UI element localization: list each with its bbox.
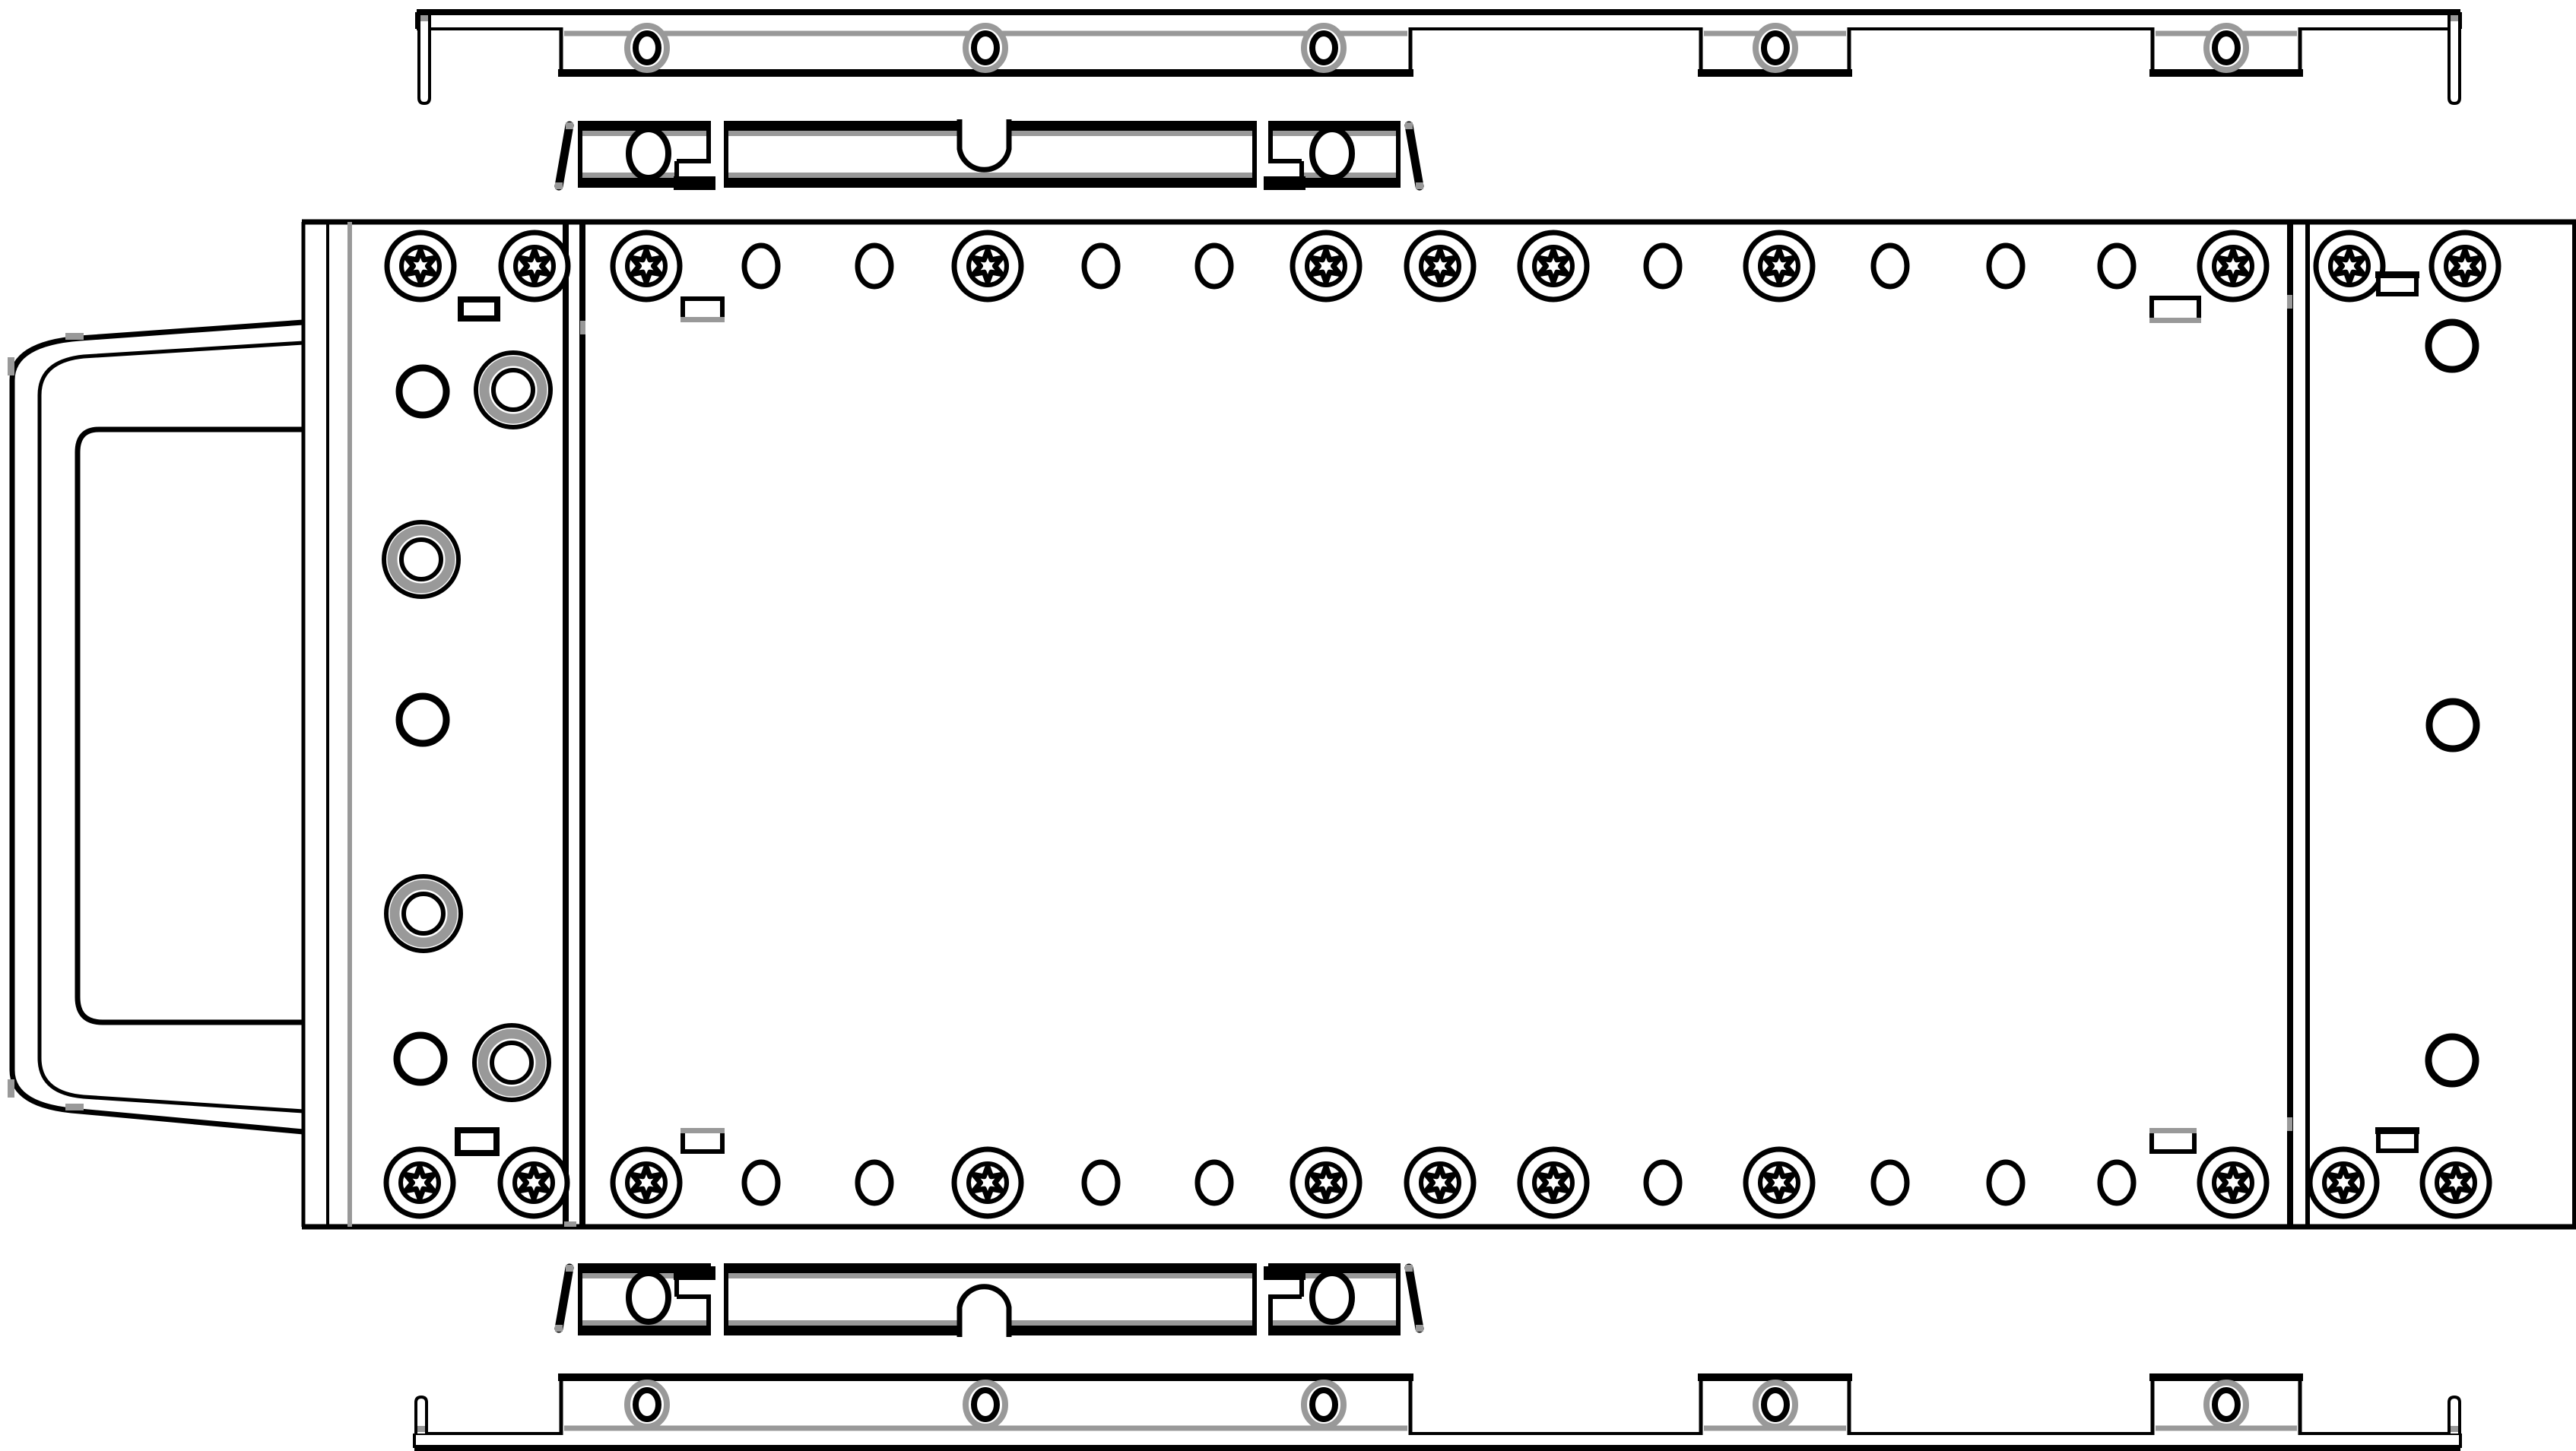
rivet-grommet bbox=[627, 26, 667, 70]
tab-slot bbox=[461, 299, 497, 318]
round-hole bbox=[2429, 702, 2476, 749]
notch-clear bbox=[679, 1278, 711, 1297]
tab-slot bbox=[2375, 271, 2419, 294]
bracket-hole bbox=[629, 129, 668, 178]
round-hole bbox=[1989, 1162, 2022, 1203]
io-connector bbox=[8, 322, 303, 1132]
torx-screw bbox=[386, 1149, 453, 1216]
torx-screw bbox=[613, 233, 680, 299]
torx-screw bbox=[1293, 233, 1359, 299]
rivet-inner-ring bbox=[974, 33, 997, 62]
grommet-hole bbox=[384, 522, 458, 597]
slot-outline bbox=[458, 1130, 496, 1153]
rivet-grommet bbox=[2206, 26, 2246, 70]
rivet-inner-ring bbox=[2215, 1390, 2238, 1419]
notch-foot bbox=[674, 1266, 715, 1280]
round-hole bbox=[399, 696, 446, 743]
body-gray-tick bbox=[564, 1221, 576, 1227]
top-mounting-rail bbox=[417, 12, 2460, 103]
round-hole bbox=[2100, 1162, 2133, 1203]
torx-screw bbox=[2432, 233, 2498, 299]
body-gray-tick bbox=[2287, 1117, 2292, 1131]
assembly-drawing-page bbox=[0, 0, 2576, 1451]
torx-screw bbox=[954, 233, 1021, 299]
spring-clip bbox=[555, 1265, 573, 1332]
torx-screw bbox=[613, 1149, 680, 1216]
rivet-grommet bbox=[1304, 1383, 1344, 1427]
round-hole bbox=[2428, 322, 2476, 369]
hook-gray-tick bbox=[417, 1426, 425, 1432]
round-hole bbox=[397, 1035, 444, 1082]
torx-screw bbox=[1293, 1149, 1359, 1216]
connector-gray-tick bbox=[8, 1079, 14, 1098]
rivet-inner-ring bbox=[1764, 1390, 1787, 1419]
grommet-hole bbox=[386, 876, 461, 951]
rivet-inner-ring bbox=[1312, 33, 1335, 62]
slot-outline bbox=[2152, 1131, 2194, 1152]
round-hole bbox=[744, 246, 778, 287]
round-hole bbox=[1084, 246, 1118, 287]
u-notch-outline bbox=[960, 119, 1009, 169]
slot-heavy-edge bbox=[2375, 1127, 2419, 1134]
spring-gray-tick bbox=[555, 182, 563, 189]
edge-line bbox=[559, 125, 569, 186]
hook-outline bbox=[419, 15, 430, 103]
bottom-clip-bracket bbox=[555, 1263, 1423, 1337]
grommet-hole bbox=[474, 1025, 549, 1100]
edge-line bbox=[559, 1268, 569, 1329]
rivet-grommet bbox=[627, 1383, 667, 1427]
torx-screw bbox=[2200, 1149, 2267, 1216]
bracket-hole bbox=[1312, 129, 1352, 178]
round-hole bbox=[1198, 246, 1231, 287]
grommet-hole bbox=[476, 353, 550, 427]
section-edge-bar bbox=[578, 1326, 711, 1335]
hook-gray-tick bbox=[420, 15, 428, 21]
spring-gray-tick bbox=[1405, 122, 1413, 129]
torx-screw bbox=[954, 1149, 1021, 1216]
tab-slot bbox=[2149, 298, 2201, 323]
step-notch bbox=[1264, 161, 1305, 190]
rivet-grommet bbox=[2206, 1383, 2246, 1427]
hook-gray-tick bbox=[2451, 15, 2458, 21]
rivet-grommet bbox=[1756, 1383, 1795, 1427]
torx-screw bbox=[2422, 1149, 2489, 1216]
bracket-hole bbox=[1312, 1273, 1352, 1322]
rivet-grommet bbox=[966, 1383, 1005, 1427]
connector-gray-tick bbox=[65, 1104, 84, 1110]
torx-screw bbox=[2316, 233, 2383, 299]
spring-gray-tick bbox=[566, 1265, 573, 1272]
connector-gray-tick bbox=[8, 357, 14, 375]
slot-gray-edge bbox=[2149, 1128, 2197, 1133]
spring-clip bbox=[555, 122, 573, 189]
notch-foot bbox=[674, 176, 715, 190]
torx-screw bbox=[500, 1149, 567, 1216]
torx-screw bbox=[1746, 233, 1813, 299]
top-clip-bracket bbox=[555, 119, 1423, 190]
tab-slot bbox=[680, 1128, 725, 1152]
round-hole bbox=[1989, 246, 2022, 287]
torx-screw bbox=[501, 233, 568, 299]
spring-gray-tick bbox=[566, 122, 573, 129]
slot-outline bbox=[461, 299, 497, 318]
slot-gray-edge bbox=[680, 1128, 725, 1133]
torx-screw bbox=[1746, 1149, 1813, 1216]
rivet-inner-ring bbox=[2215, 33, 2238, 62]
round-hole bbox=[858, 1162, 891, 1203]
body-face bbox=[303, 222, 2574, 1227]
slot-heavy-edge bbox=[2375, 271, 2419, 278]
body-gray-tick bbox=[580, 321, 585, 334]
grommet-inner-ring bbox=[493, 370, 533, 410]
torx-screw bbox=[1407, 1149, 1474, 1216]
rivet-grommet bbox=[966, 26, 1005, 70]
assembly-drawing bbox=[0, 0, 2576, 1451]
slot-outline bbox=[2152, 298, 2199, 320]
torx-screw bbox=[1407, 233, 1474, 299]
hook-gray-tick bbox=[2451, 1426, 2458, 1432]
slot-gray-edge bbox=[2149, 318, 2201, 323]
torx-screw bbox=[387, 233, 454, 299]
chassis-body bbox=[302, 222, 2576, 1227]
rail-tab bbox=[558, 26, 1413, 73]
spring-gray-tick bbox=[555, 1325, 563, 1332]
bracket-hole bbox=[629, 1273, 668, 1322]
round-hole bbox=[2100, 246, 2133, 287]
slot-outline bbox=[683, 1131, 722, 1152]
rivet-inner-ring bbox=[1312, 1390, 1335, 1419]
rail-tab bbox=[1698, 1377, 1852, 1435]
slot-outline bbox=[683, 299, 722, 319]
round-hole bbox=[1646, 1162, 1680, 1203]
rivet-grommet bbox=[1304, 26, 1344, 70]
round-hole bbox=[1646, 246, 1680, 287]
slot-gray-edge bbox=[680, 317, 725, 322]
u-notch bbox=[960, 119, 1009, 169]
rivet-grommet bbox=[1756, 26, 1795, 70]
tab-slot bbox=[2375, 1127, 2419, 1151]
notch-foot bbox=[1264, 1266, 1305, 1280]
u-notch-outline bbox=[960, 1287, 1009, 1337]
round-hole bbox=[1198, 1162, 1231, 1203]
step-notch bbox=[674, 1266, 715, 1297]
section-edge-bar bbox=[724, 178, 1257, 188]
bottom-mounting-rail bbox=[414, 1377, 2460, 1448]
rivet-inner-ring bbox=[1764, 33, 1787, 62]
body-gray-tick bbox=[2287, 295, 2292, 309]
round-hole bbox=[1084, 1162, 1118, 1203]
u-notch bbox=[960, 1287, 1009, 1337]
spring-gray-tick bbox=[1416, 1325, 1423, 1332]
torx-screw bbox=[1520, 233, 1587, 299]
step-notch bbox=[674, 161, 715, 190]
spring-gray-tick bbox=[1416, 182, 1423, 189]
rail-end-hook bbox=[419, 15, 430, 103]
torx-screw bbox=[2310, 1149, 2377, 1216]
round-hole bbox=[2428, 1037, 2476, 1084]
section-gray-line bbox=[724, 173, 1257, 178]
rail-tab bbox=[558, 1377, 1413, 1435]
section-edge-bar bbox=[724, 1263, 1257, 1273]
spring-clip bbox=[1405, 122, 1423, 189]
torx-screw bbox=[2200, 233, 2267, 299]
round-hole bbox=[1873, 246, 1907, 287]
tab-slot bbox=[680, 299, 725, 322]
connector-window bbox=[78, 429, 303, 1022]
step-notch bbox=[1264, 1266, 1305, 1297]
edge-line bbox=[1409, 125, 1420, 186]
grommet-inner-ring bbox=[401, 540, 441, 579]
grommet-inner-ring bbox=[404, 894, 443, 933]
torx-screw bbox=[1520, 1149, 1587, 1216]
spring-gray-tick bbox=[1405, 1265, 1413, 1272]
spring-clip bbox=[1405, 1265, 1423, 1332]
connector-gray-tick bbox=[65, 333, 84, 340]
round-hole bbox=[858, 246, 891, 287]
rivet-inner-ring bbox=[636, 33, 658, 62]
grommet-inner-ring bbox=[492, 1043, 531, 1082]
rivet-inner-ring bbox=[974, 1390, 997, 1419]
notch-clear bbox=[1268, 1278, 1300, 1297]
hook-outline bbox=[2449, 15, 2460, 103]
round-hole bbox=[744, 1162, 778, 1203]
tab-slot bbox=[2149, 1128, 2197, 1152]
rail-tab bbox=[1698, 26, 1852, 73]
edge-line bbox=[1409, 1268, 1420, 1329]
round-hole bbox=[399, 368, 446, 415]
rail-end-hook bbox=[2449, 15, 2460, 103]
round-hole bbox=[1873, 1162, 1907, 1203]
section-edge-bar bbox=[1268, 1326, 1401, 1335]
tab-slot bbox=[458, 1130, 496, 1153]
rivet-inner-ring bbox=[636, 1390, 658, 1419]
rail-tab bbox=[2149, 1377, 2303, 1435]
rail-tab bbox=[2149, 26, 2303, 73]
section-gray-line bbox=[724, 1273, 1257, 1278]
notch-foot bbox=[1264, 176, 1305, 190]
